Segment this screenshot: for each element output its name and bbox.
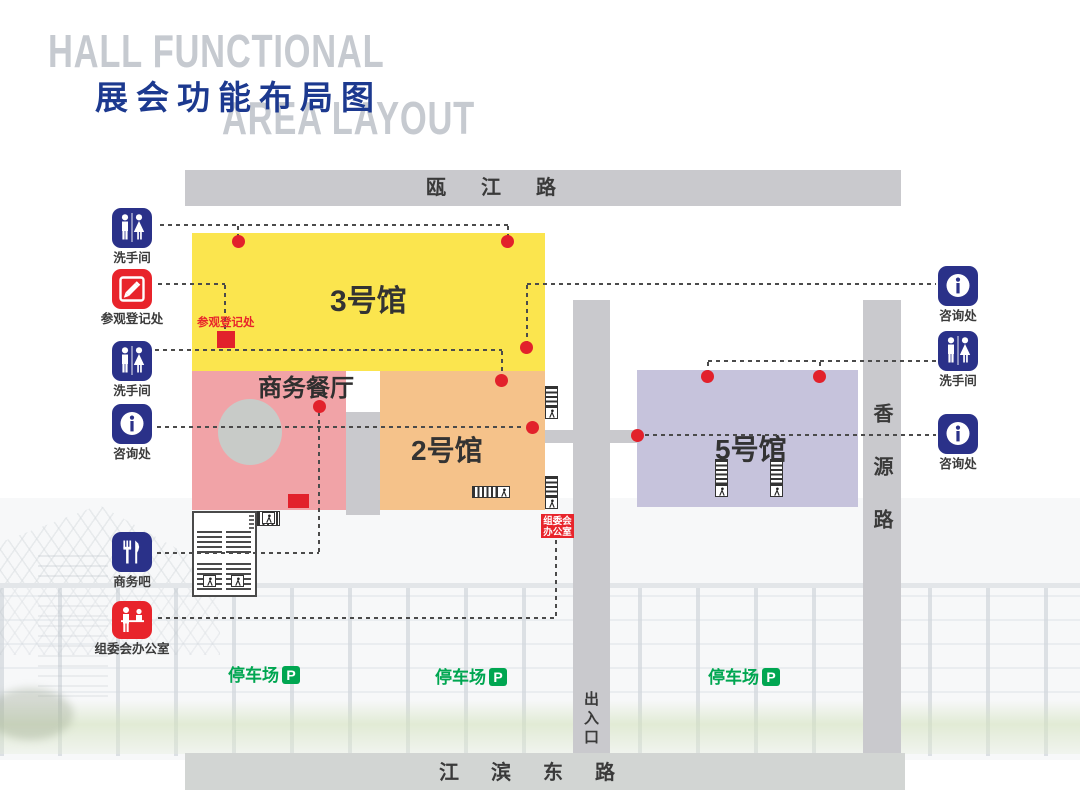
parking-label: 停车场 bbox=[228, 667, 279, 684]
hall-2-label: 2号馆 bbox=[411, 437, 483, 465]
leader-line bbox=[155, 349, 502, 351]
legend-label: 组委会办公室 bbox=[90, 643, 174, 657]
office-icon bbox=[90, 601, 174, 639]
pedestrian-icon bbox=[231, 575, 244, 587]
road-oujiang: 瓯江路 bbox=[185, 170, 901, 206]
leader-line bbox=[526, 285, 528, 342]
pedestrian-icon bbox=[545, 407, 558, 419]
leader-line bbox=[555, 540, 557, 617]
leader-line bbox=[157, 552, 319, 554]
legend-info-left: 咨询处 bbox=[90, 404, 174, 462]
escalator-icon bbox=[545, 386, 558, 407]
info-icon bbox=[90, 404, 174, 444]
parking-label: 停车场 bbox=[435, 669, 486, 686]
registration-point-label: 参观登记处 bbox=[197, 318, 255, 330]
leader-line bbox=[160, 224, 509, 226]
background-lawn bbox=[0, 700, 1080, 754]
committee-office-line2: 办公室 bbox=[541, 527, 574, 538]
legend-label: 咨询处 bbox=[916, 310, 1000, 324]
legend-restroom-1: 洗手间 bbox=[90, 208, 174, 266]
legend-label: 咨询处 bbox=[916, 458, 1000, 472]
legend-label: 洗手间 bbox=[90, 385, 174, 399]
escalator-icon bbox=[770, 459, 783, 485]
escalator-icon bbox=[545, 476, 558, 497]
road-jiangbin: 江滨东路 bbox=[185, 753, 905, 790]
restroom-icon bbox=[916, 331, 1000, 371]
restroom-icon bbox=[90, 341, 174, 381]
restaurant-label: 商务餐厅 bbox=[258, 377, 354, 401]
location-marker-dot bbox=[520, 341, 533, 354]
parking-label: 停车场 bbox=[708, 669, 759, 686]
escalator-icon bbox=[715, 459, 728, 485]
leader-line bbox=[501, 351, 503, 375]
food-icon bbox=[90, 532, 174, 572]
location-marker-dot bbox=[313, 400, 326, 413]
registration-icon bbox=[90, 269, 174, 309]
hall-3-label: 3号馆 bbox=[330, 287, 407, 317]
location-marker-dot bbox=[813, 370, 826, 383]
legend-business-bar: 商务吧 bbox=[90, 532, 174, 590]
legend-info-right-1: 咨询处 bbox=[916, 266, 1000, 324]
committee-office-line1: 组委会 bbox=[541, 516, 574, 527]
entrance-gate-label: 出入口 bbox=[583, 691, 598, 748]
legend-label: 参观登记处 bbox=[90, 313, 174, 327]
leader-line bbox=[318, 412, 320, 553]
exhibition-layout-map: HALL FUNCTIONAL AREA LAYOUT 展会功能布局图 瓯江路 … bbox=[0, 0, 1080, 810]
parking-area-2: 停车场 P bbox=[435, 668, 507, 686]
leader-line bbox=[157, 426, 525, 428]
leader-line bbox=[645, 434, 936, 436]
spiral-stair-icon bbox=[249, 515, 254, 530]
title-english-top: HALL FUNCTIONAL bbox=[48, 28, 384, 74]
hall-5: 5号馆 bbox=[637, 370, 858, 507]
restroom-icon bbox=[90, 208, 174, 248]
parking-area-1: 停车场 P bbox=[228, 666, 300, 684]
pedestrian-icon bbox=[770, 485, 783, 497]
legend-restroom-2: 洗手间 bbox=[90, 341, 174, 399]
pedestrian-icon bbox=[203, 575, 216, 587]
pedestrian-icon bbox=[545, 497, 558, 509]
info-icon bbox=[916, 414, 1000, 454]
location-marker-dot bbox=[701, 370, 714, 383]
location-marker-dot bbox=[495, 374, 508, 387]
registration-point-marker bbox=[217, 331, 235, 348]
legend-label: 商务吧 bbox=[90, 576, 174, 590]
parking-icon: P bbox=[489, 668, 507, 686]
page-title: 展会功能布局图 bbox=[95, 81, 382, 114]
location-marker-dot bbox=[501, 235, 514, 248]
legend-committee-office: 组委会办公室 bbox=[90, 601, 174, 657]
leader-line bbox=[158, 617, 556, 619]
connector-road bbox=[545, 430, 637, 443]
restaurant-round-table bbox=[218, 399, 282, 465]
pedestrian-icon bbox=[715, 485, 728, 497]
legend-registration: 参观登记处 bbox=[90, 269, 174, 327]
legend-label: 咨询处 bbox=[90, 448, 174, 462]
business-restaurant: 商务餐厅 bbox=[192, 371, 346, 510]
road-xiangyuan-label: 香源路 bbox=[871, 403, 891, 562]
parking-area-3: 停车场 P bbox=[708, 668, 780, 686]
leader-line bbox=[527, 283, 936, 285]
entrance-corridor bbox=[573, 300, 610, 755]
legend-label: 洗手间 bbox=[916, 375, 1000, 389]
pedestrian-icon bbox=[497, 486, 510, 498]
location-marker-dot bbox=[232, 235, 245, 248]
road-xiangyuan: 香源路 bbox=[863, 300, 901, 790]
info-icon bbox=[916, 266, 1000, 306]
entrance-stairs-structure bbox=[192, 511, 257, 597]
location-marker-dot bbox=[526, 421, 539, 434]
legend-info-right-2: 咨询处 bbox=[916, 414, 1000, 472]
location-marker-dot bbox=[631, 429, 644, 442]
marker-square bbox=[288, 494, 309, 508]
pedestrian-icon bbox=[262, 512, 275, 524]
escalator-icon bbox=[472, 486, 498, 498]
parking-icon: P bbox=[762, 668, 780, 686]
legend-label: 洗手间 bbox=[90, 252, 174, 266]
committee-office-label: 组委会 办公室 bbox=[541, 514, 574, 538]
parking-icon: P bbox=[282, 666, 300, 684]
leader-line bbox=[708, 360, 936, 362]
legend-restroom-right: 洗手间 bbox=[916, 331, 1000, 389]
road-oujiang-label: 瓯江路 bbox=[426, 178, 591, 198]
hall-2: 2号馆 bbox=[380, 371, 545, 510]
road-jiangbin-label: 江滨东路 bbox=[439, 763, 647, 783]
